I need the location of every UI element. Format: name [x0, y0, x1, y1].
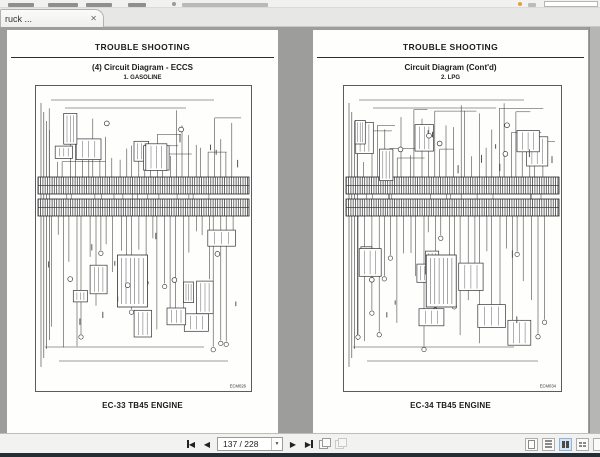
page-header: TROUBLE SHOOTING — [7, 42, 278, 52]
page-footer: EC-33 TB45 ENGINE — [7, 401, 278, 410]
vertical-scrollbar[interactable] — [589, 27, 600, 433]
page-number-combobox[interactable]: 137 / 228 ▼ — [217, 437, 283, 451]
document-tab[interactable]: ruck ... ✕ — [0, 9, 104, 27]
circuit-diagram-gasoline: ECM026 — [35, 85, 252, 392]
facing-continuous-view-button[interactable] — [576, 438, 589, 451]
tell-me-hint-text — [182, 3, 268, 7]
window-bottom-edge — [0, 453, 600, 457]
circuit-diagram-lpg: ECM034 — [343, 85, 562, 392]
page-title: (4) Circuit Diagram - ECCS — [7, 63, 278, 72]
page-nav-cluster: ◀ ◀ 137 / 228 ▼ ▶ ▶ — [185, 434, 347, 454]
facing-view-button[interactable] — [559, 438, 572, 451]
page-indicator[interactable]: 137 / 228 — [218, 439, 271, 449]
search-input[interactable] — [544, 1, 598, 7]
previous-page-button[interactable]: ◀ — [201, 437, 213, 451]
page-subtitle: 2. LPG — [313, 75, 588, 81]
header-rule — [317, 57, 584, 58]
svg-text:ECM026: ECM026 — [230, 384, 247, 389]
last-page-button[interactable]: ▶ — [303, 437, 315, 451]
page-title: Circuit Diagram (Cont'd) — [313, 63, 588, 72]
notification-dot-icon — [518, 2, 522, 6]
svg-text:ECM034: ECM034 — [540, 384, 557, 389]
next-view-button[interactable] — [335, 438, 347, 450]
page-dropdown-caret-icon[interactable]: ▼ — [271, 438, 282, 450]
menu-item-fragment[interactable] — [128, 3, 146, 7]
pdf-page-left: TROUBLE SHOOTING (4) Circuit Diagram - E… — [7, 30, 278, 433]
app-window: ruck ... ✕ TROUBLE SHOOTING (4) Circuit … — [0, 0, 600, 457]
tab-close-icon[interactable]: ✕ — [90, 14, 97, 23]
header-rule — [11, 57, 274, 58]
previous-view-button[interactable] — [319, 438, 331, 450]
single-page-view-button[interactable] — [525, 438, 538, 451]
document-view: TROUBLE SHOOTING (4) Circuit Diagram - E… — [0, 27, 600, 433]
tip-icon — [172, 2, 176, 6]
zoom-tool-button-cutoff[interactable] — [593, 438, 600, 451]
last-page-bar-icon — [311, 440, 313, 448]
page-footer: EC-34 TB45 ENGINE — [313, 401, 588, 410]
toolbar-icon-fragment[interactable] — [528, 3, 536, 7]
menu-strip — [0, 0, 600, 8]
menu-item-fragment[interactable] — [86, 3, 112, 7]
next-page-button[interactable]: ▶ — [287, 437, 299, 451]
document-tab-label: ruck ... — [5, 14, 86, 24]
page-header: TROUBLE SHOOTING — [313, 42, 588, 52]
page-layout-cluster — [525, 434, 597, 454]
pdf-page-right: TROUBLE SHOOTING Circuit Diagram (Cont'd… — [313, 30, 588, 433]
menu-item-fragment[interactable] — [8, 3, 34, 7]
tab-bar: ruck ... ✕ — [0, 8, 600, 27]
menu-item-fragment[interactable] — [48, 3, 78, 7]
page-subtitle: 1. GASOLINE — [7, 75, 278, 81]
bottom-toolbar: ◀ ◀ 137 / 228 ▼ ▶ ▶ — [0, 433, 600, 453]
continuous-view-button[interactable] — [542, 438, 555, 451]
first-page-button[interactable]: ◀ — [185, 437, 197, 451]
